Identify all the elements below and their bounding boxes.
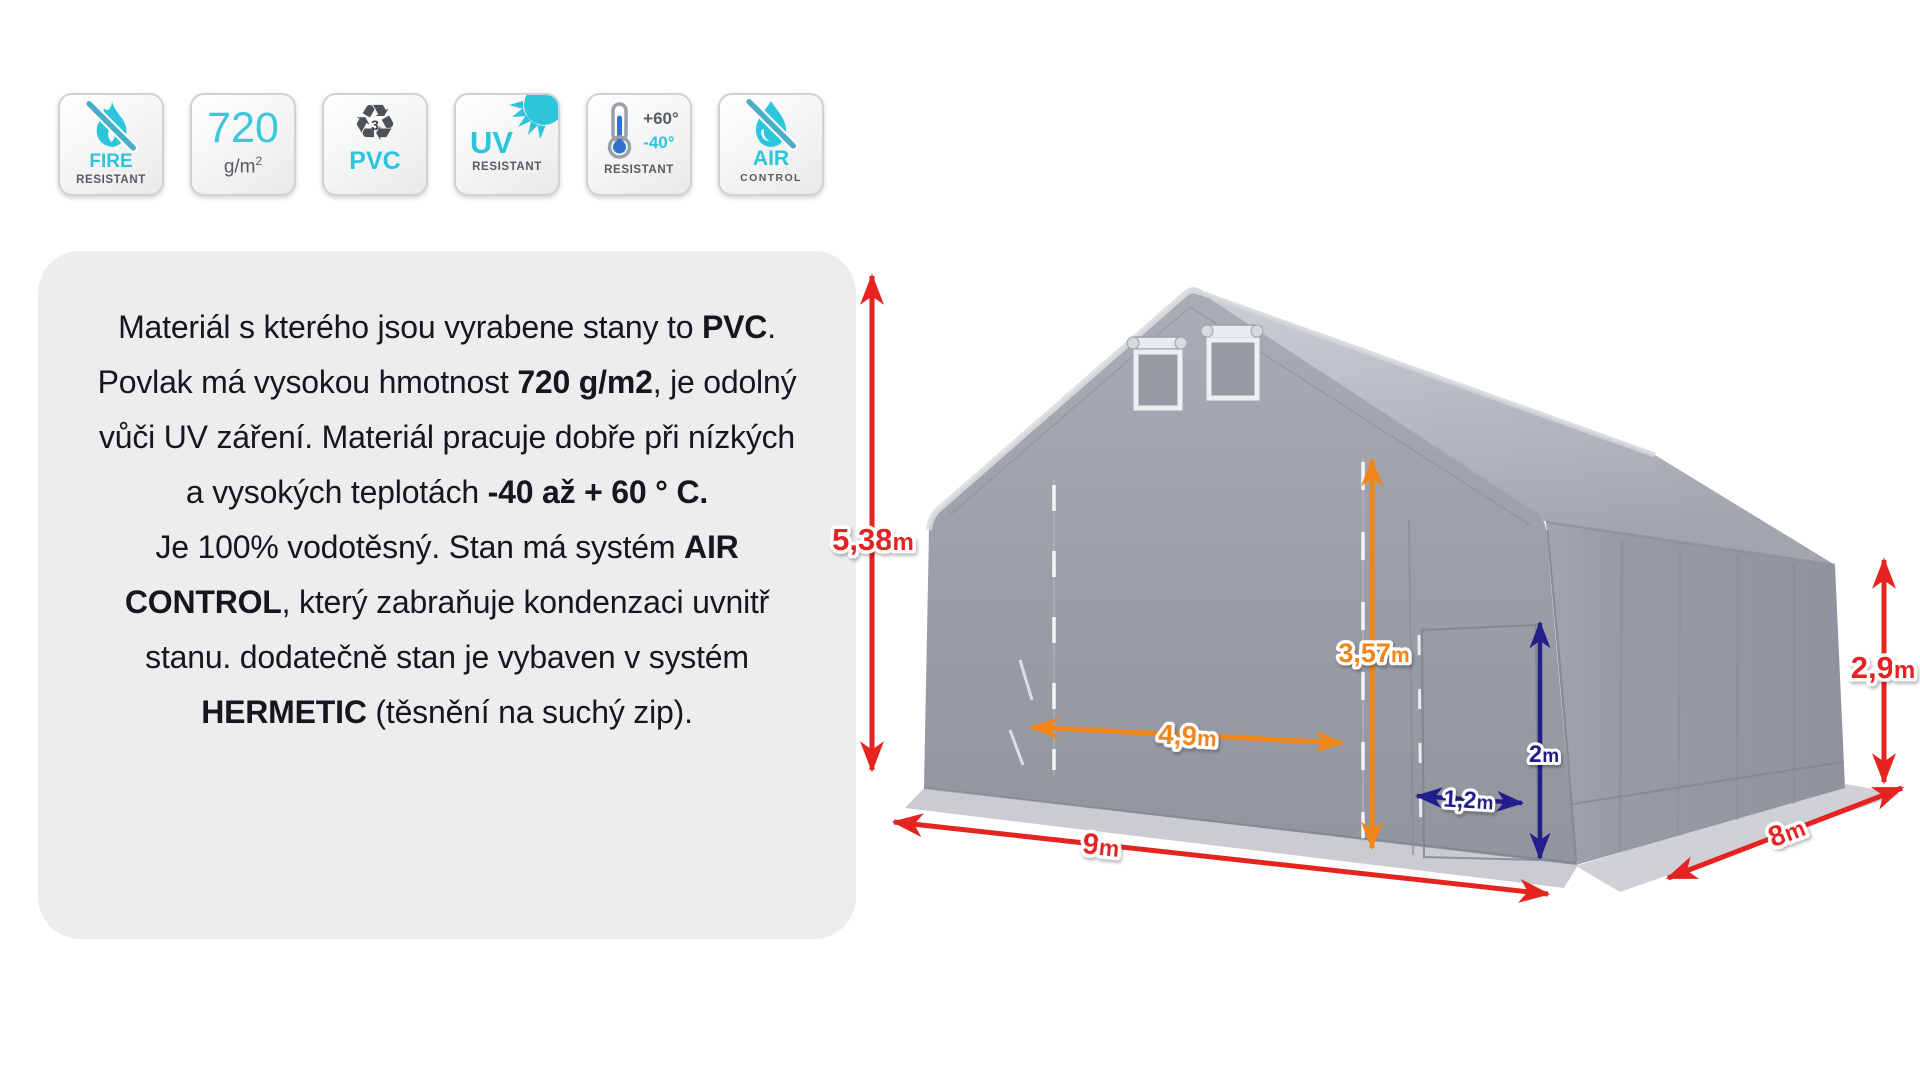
badge-weight-unit: g/m2 <box>224 154 262 178</box>
recycle-icon: ♻ 3 <box>324 95 426 151</box>
dim-label-side-height: 2,9m <box>1851 650 1915 685</box>
badge-air-control: AIR CONTROL <box>718 93 824 196</box>
sun-icon <box>498 93 560 149</box>
recycle-number: 3 <box>371 117 379 133</box>
badge-weight-unit-text: g/m <box>224 156 256 177</box>
badge-temp-subtitle: RESISTANT <box>604 164 674 176</box>
badge-uv-resistant: UV RESISTANT <box>454 93 560 196</box>
description-text: Materiál s kterého jsou vyrabene stany t… <box>97 300 797 740</box>
feature-badges-row: FIRE RESISTANT 720 g/m2 ♻ 3 PVC <box>58 93 824 196</box>
dim-label-total-height: 5,38m <box>832 522 914 557</box>
badge-fire-title: FIRE <box>89 152 132 171</box>
badge-temp-high: +60° <box>643 109 679 129</box>
page: FIRE RESISTANT 720 g/m2 ♻ 3 PVC <box>0 0 1920 1080</box>
flame-slash-icon <box>82 99 140 153</box>
tent-diagram-svg: 5,38m 9m 8m 2,9m 3,57m 4,9m 2m 1,2m <box>860 230 1920 980</box>
badge-air-subtitle: CONTROL <box>740 172 802 184</box>
thermometer-icon <box>599 101 639 161</box>
badge-temp-low: -40° <box>643 133 679 153</box>
badge-weight-unit-sup: 2 <box>256 154 263 168</box>
vent-window <box>1127 337 1187 408</box>
badge-pvc-label: PVC <box>349 149 400 174</box>
badge-fire-subtitle: RESISTANT <box>76 174 146 186</box>
drop-slash-icon <box>743 99 799 151</box>
description-panel: Materiál s kterého jsou vyrabene stany t… <box>38 251 856 939</box>
badge-uv-subtitle: RESISTANT <box>472 161 542 173</box>
badge-fire-resistant: FIRE RESISTANT <box>58 93 164 196</box>
badge-temperature-resistant: +60° -40° RESISTANT <box>586 93 692 196</box>
badge-weight-value: 720 <box>207 107 279 150</box>
badge-fabric-weight: 720 g/m2 <box>190 93 296 196</box>
vent-window <box>1201 325 1263 398</box>
badge-air-title: AIR <box>753 148 789 169</box>
badge-pvc: ♻ 3 PVC <box>322 93 428 196</box>
tent-diagram: 5,38m 9m 8m 2,9m 3,57m 4,9m 2m 1,2m <box>860 230 1920 980</box>
dim-label-door-height: 2m <box>1529 741 1559 768</box>
